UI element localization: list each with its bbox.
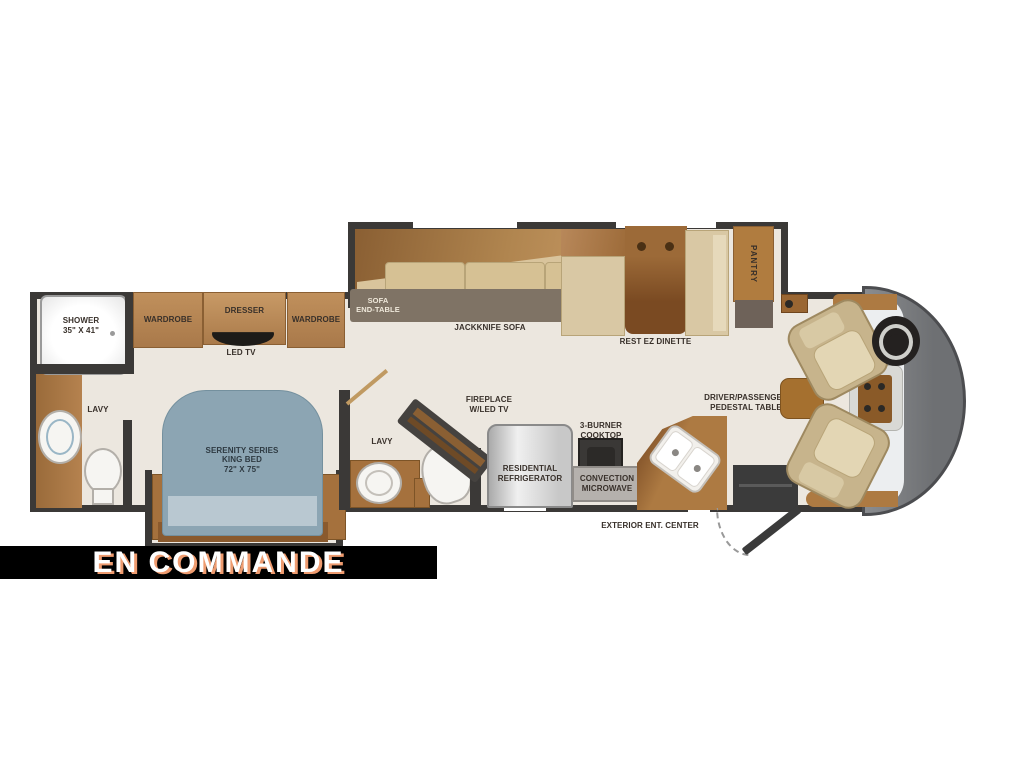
microwave-label: CONVECTION MICROWAVE [574,470,640,498]
wall-segment [36,364,133,374]
cab-overhead-console [781,294,808,313]
pantry-base-cabinet [735,300,773,328]
rear-toilet-base [92,488,114,505]
dresser-label: DRESSER [203,296,286,326]
shower-drain-icon [110,331,115,336]
wall-segment [339,390,350,510]
entry-step-line [739,484,792,487]
status-banner-text: EN COMMANDE [93,546,345,580]
steering-wheel-hub [888,334,904,351]
pantry-label: PANTRY [749,245,758,283]
entry-door [742,506,802,555]
dinette-bench-highlight [713,235,726,331]
king-bed-label: SERENITY SERIES KING BED 72" X 75" [177,440,307,480]
refrigerator-label: RESIDENTIAL REFRIGERATOR [490,462,570,486]
shower-label: SHOWER 35" X 41" [44,312,118,340]
exterior-ent-center-label: EXTERIOR ENT. CENTER [598,520,702,532]
wardrobe-right-label: WARDROBE [287,292,345,348]
sofa-end-table-label: SOFA END-TABLE [351,292,405,318]
cup-holder-icon [665,242,674,251]
cup-holder-icon [864,405,871,412]
cup-holder-icon [637,242,646,251]
cup-holder-icon [878,405,885,412]
cup-holder-icon [864,383,871,390]
console-knob-icon [785,300,793,308]
rv-floorplan-page: SHOWER 35" X 41" LAVY WARDROBE DRESSER W… [0,0,1024,768]
rear-bath-sink-ring [46,419,74,455]
dinette-bench-left [561,256,625,336]
jackknife-sofa-label: JACKKNIFE SOFA [440,322,540,334]
cup-holder-icon [878,383,885,390]
mid-bath-sink-ring [365,470,393,496]
status-banner: EN COMMANDE [0,546,437,579]
wall-segment [123,420,132,508]
bed-blanket-band [168,496,317,526]
mid-lavy-label: LAVY [360,436,404,448]
fireplace-label: FIREPLACE W/LED TV [458,394,520,416]
dinette-table [625,226,687,334]
rest-ez-dinette-label: REST EZ DINETTE [608,336,703,348]
rear-lavy-label: LAVY [76,404,120,416]
window-gap [413,220,517,228]
dinette-bench-right [685,230,729,336]
wardrobe-left-label: WARDROBE [133,292,203,348]
led-tv-label: LED TV [218,347,264,358]
pantry: PANTRY [733,226,774,302]
